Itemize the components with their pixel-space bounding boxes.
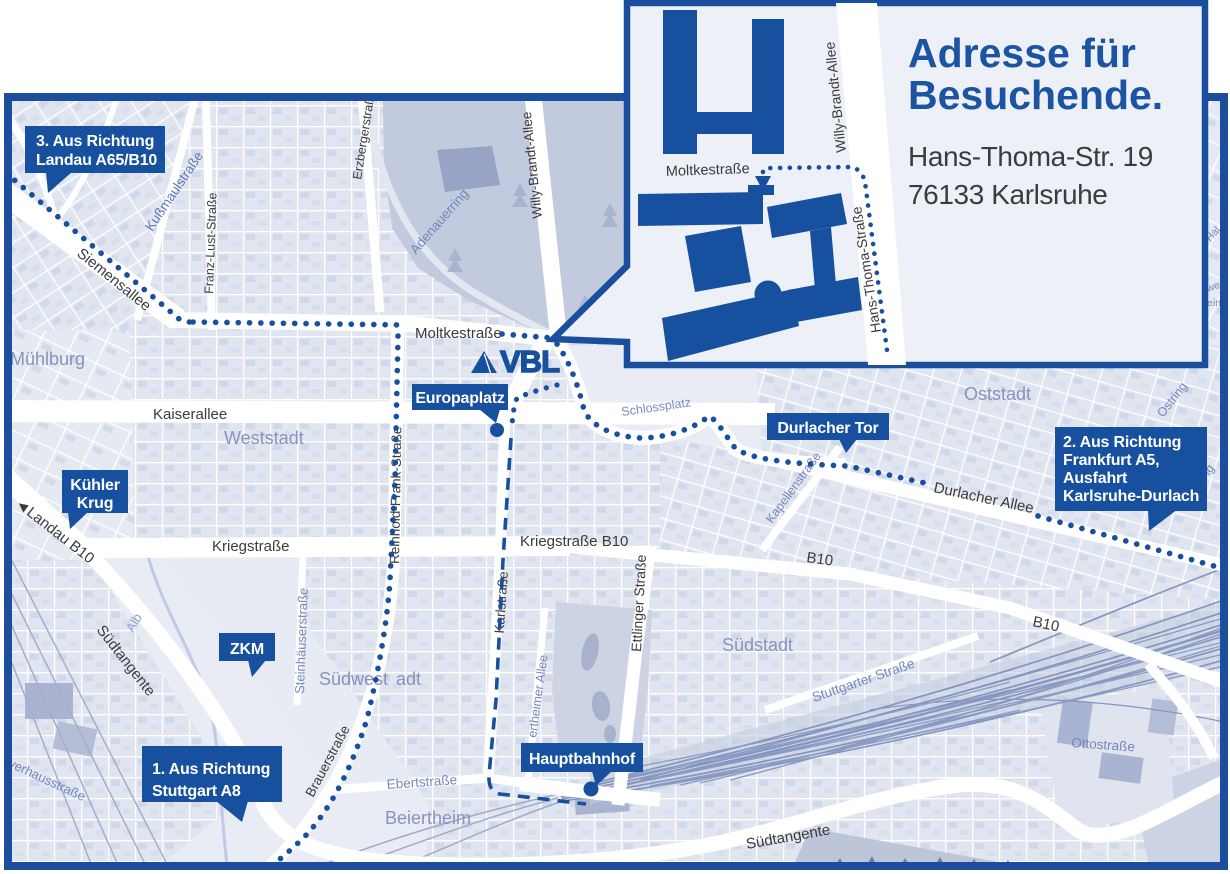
svg-text:ein: ein	[1207, 297, 1221, 309]
svg-text:Weststadt: Weststadt	[224, 428, 304, 448]
svg-text:Hans-Thoma-Str. 19: Hans-Thoma-Str. 19	[908, 141, 1153, 172]
svg-text:Karlsruhe-Durlach: Karlsruhe-Durlach	[1063, 488, 1199, 505]
svg-text:VBL: VBL	[500, 344, 559, 379]
svg-text:Kriegstraße B10: Kriegstraße B10	[520, 533, 628, 550]
svg-text:Beiertheim: Beiertheim	[385, 808, 471, 828]
svg-text:adt: adt	[396, 669, 421, 689]
svg-text:Moltkestraße: Moltkestraße	[666, 161, 750, 180]
svg-text:Kriegstraße: Kriegstraße	[212, 538, 290, 555]
svg-text:Oststadt: Oststadt	[964, 384, 1031, 404]
svg-text:Stuttgart A8: Stuttgart A8	[152, 783, 241, 800]
svg-text:Besuchende.: Besuchende.	[908, 72, 1163, 118]
svg-text:3. Aus Richtung: 3. Aus Richtung	[36, 133, 154, 150]
svg-text:Europaplatz: Europaplatz	[415, 390, 505, 407]
svg-text:ZKM: ZKM	[230, 641, 264, 658]
svg-text:Krug: Krug	[77, 495, 114, 512]
svg-text:1. Aus Richtung: 1. Aus Richtung	[152, 761, 270, 778]
svg-text:76133 Karlsruhe: 76133 Karlsruhe	[908, 179, 1107, 210]
svg-text:Hauptbahnhof: Hauptbahnhof	[529, 751, 636, 768]
svg-text:Kühler: Kühler	[70, 477, 119, 494]
svg-text:Frankfurt A5,: Frankfurt A5,	[1063, 452, 1159, 469]
svg-text:Moltkestraße: Moltkestraße	[415, 325, 502, 342]
svg-text:Adresse für: Adresse für	[908, 30, 1136, 76]
svg-text:Kaiserallee: Kaiserallee	[153, 406, 227, 423]
svg-text:Durlacher Tor: Durlacher Tor	[777, 420, 878, 437]
svg-text:2. Aus Richtung: 2. Aus Richtung	[1063, 434, 1181, 451]
svg-text:Landau A65/B10: Landau A65/B10	[36, 152, 157, 169]
svg-text:Mühlburg: Mühlburg	[10, 349, 85, 369]
svg-text:Südstadt: Südstadt	[722, 635, 793, 655]
svg-text:Ausfahrt: Ausfahrt	[1063, 470, 1128, 487]
